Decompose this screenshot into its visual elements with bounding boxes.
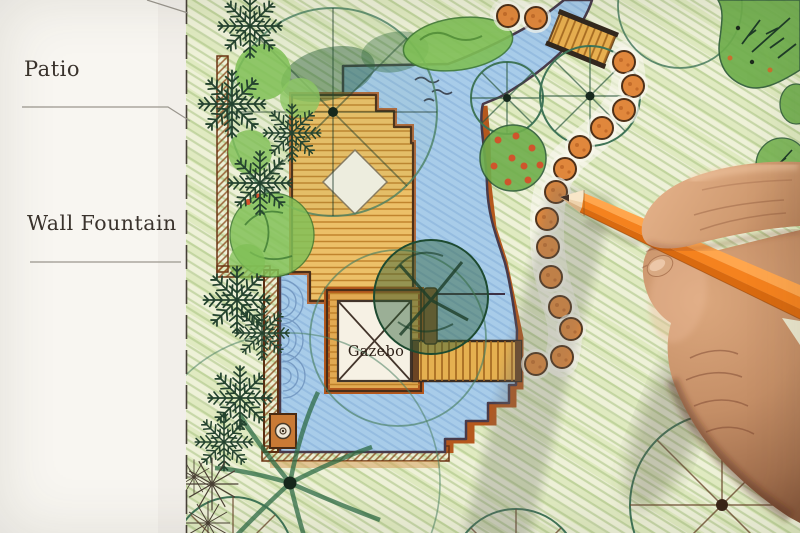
wall-fountain [270,414,296,448]
patio-label: Patio [24,57,80,81]
shrub [280,78,320,118]
wall-fountain-label: Wall Fountain [27,211,177,235]
gazebo-tree [374,240,488,354]
photo-of-landscape-plan: Patio Wall Fountain Gazebo [0,0,800,533]
margin-shading [158,0,186,533]
plan-drawing [0,0,800,533]
tree-canopy [471,62,543,134]
gazebo-label: Gazebo [338,344,414,360]
shrub [229,244,265,280]
berry-shrub [480,125,546,191]
